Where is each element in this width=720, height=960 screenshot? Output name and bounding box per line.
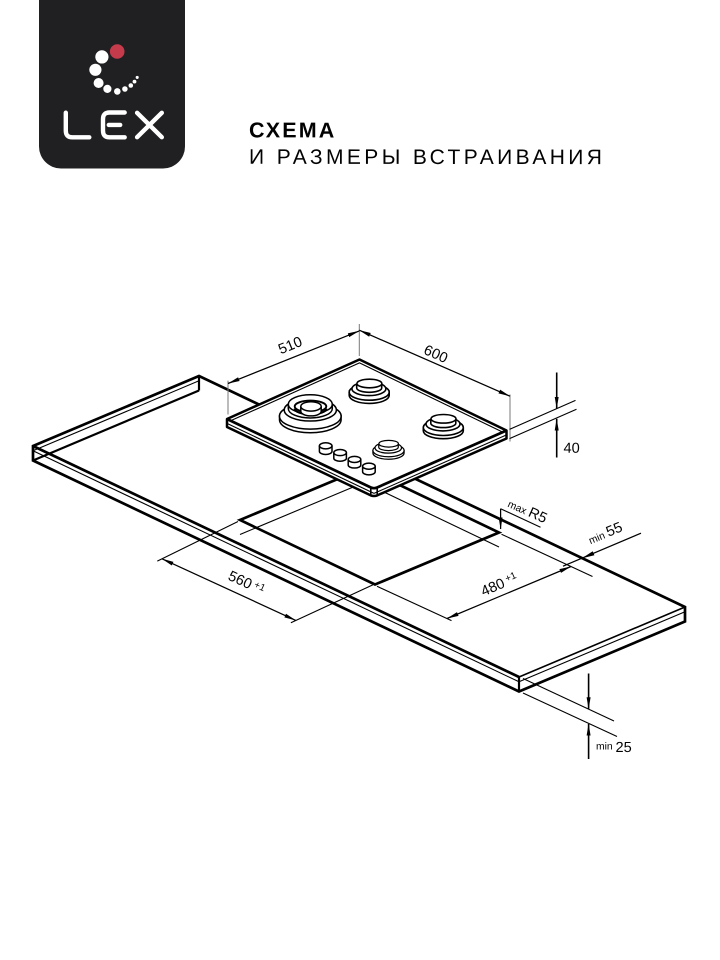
svg-text:600: 600 [421,342,450,367]
svg-text:min 55: min 55 [586,520,625,548]
svg-text:И РАЗМЕРЫ ВСТРАИВАНИЯ: И РАЗМЕРЫ ВСТРАИВАНИЯ [249,146,605,169]
svg-text:СХЕМА: СХЕМА [249,118,336,142]
svg-text:560 +1: 560 +1 [225,568,266,598]
svg-text:max R5: max R5 [505,496,549,527]
svg-text:min 25: min 25 [596,740,632,756]
svg-text:40: 40 [563,441,579,457]
